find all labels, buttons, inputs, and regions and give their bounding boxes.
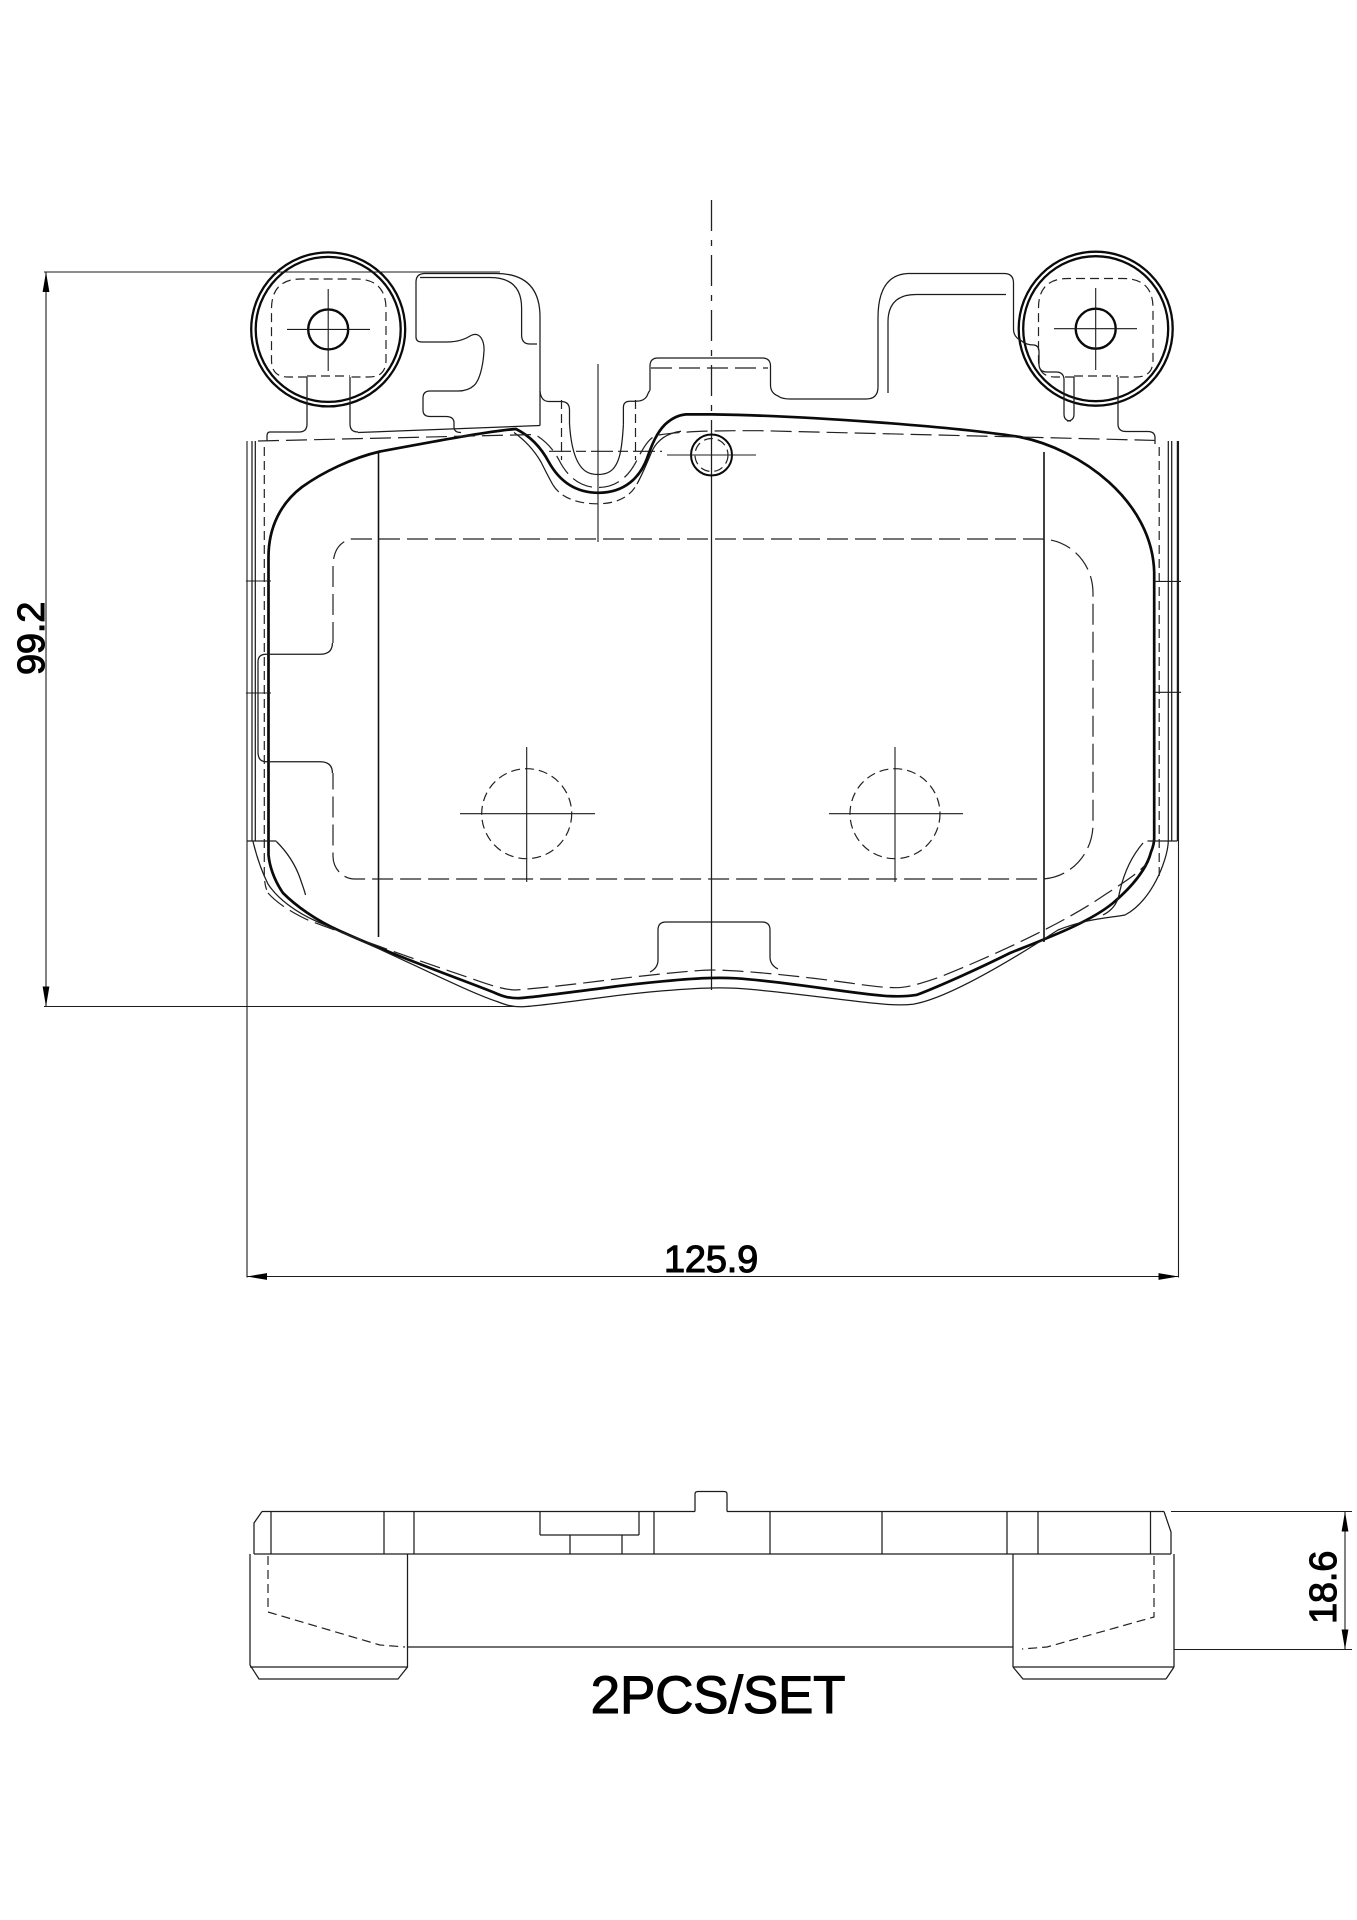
svg-text:18.6: 18.6 bbox=[1303, 1551, 1345, 1624]
svg-text:125.9: 125.9 bbox=[664, 1239, 758, 1281]
svg-text:99.2: 99.2 bbox=[11, 602, 53, 675]
svg-text:2PCS/SET: 2PCS/SET bbox=[591, 1666, 846, 1725]
